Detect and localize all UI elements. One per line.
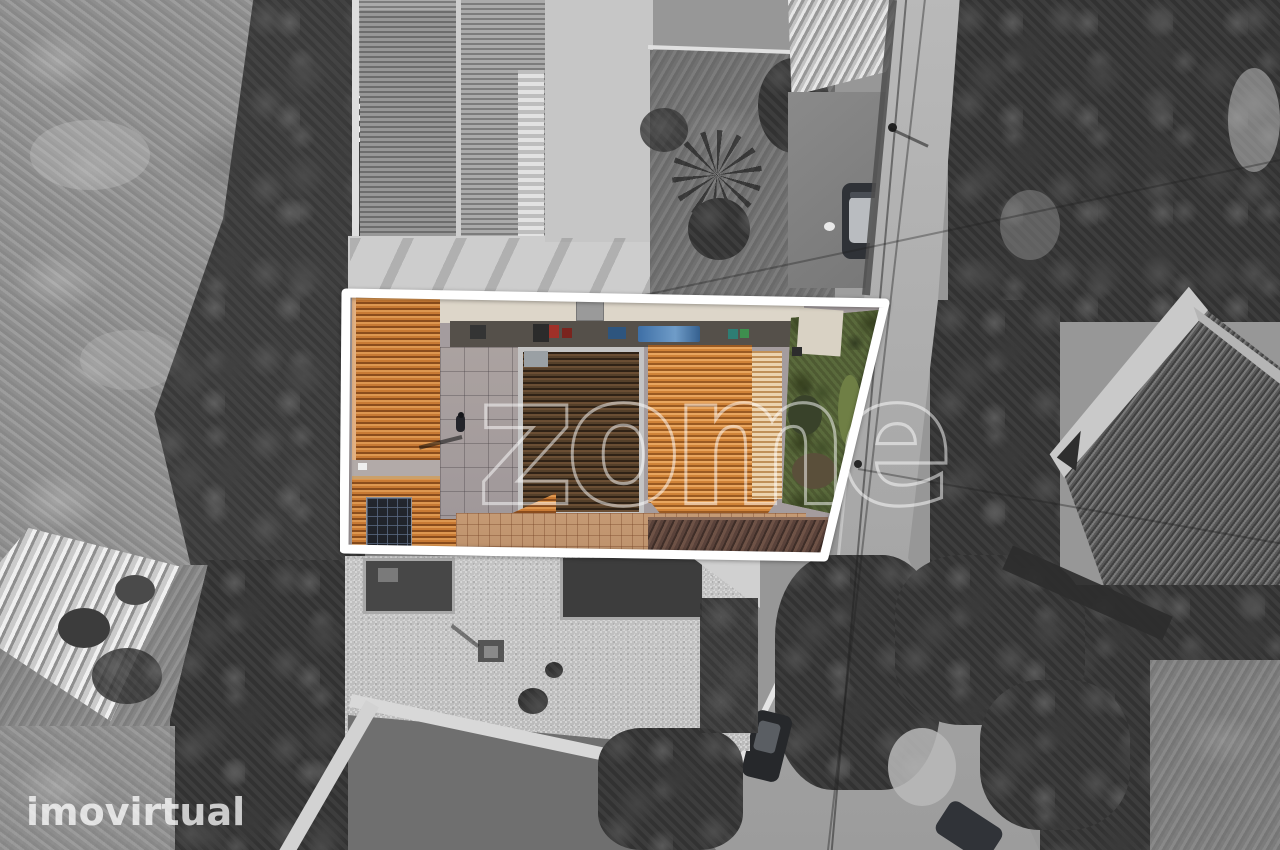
courtyard-object xyxy=(378,568,398,582)
neighbor-house-right xyxy=(1040,280,1280,615)
imovirtual-watermark: imovirtual xyxy=(26,790,245,834)
zome-watermark: zome xyxy=(476,352,944,532)
ruin-shrub xyxy=(92,648,162,704)
ruin-hole xyxy=(58,608,110,648)
ruin-hole xyxy=(115,575,155,605)
tree-canopy xyxy=(980,680,1130,830)
dirt-patch-bottom-right xyxy=(1150,660,1280,850)
yard-plant xyxy=(545,662,563,678)
courtyard-opening xyxy=(560,558,702,620)
hedge-right-of-yard xyxy=(700,598,758,733)
sand-patch xyxy=(888,728,956,806)
yard-plant xyxy=(518,688,548,714)
rooftop-vent-top xyxy=(484,646,498,658)
aerial-photo: zome imovirtual xyxy=(0,0,1280,850)
trees-bottom-center xyxy=(598,728,743,850)
